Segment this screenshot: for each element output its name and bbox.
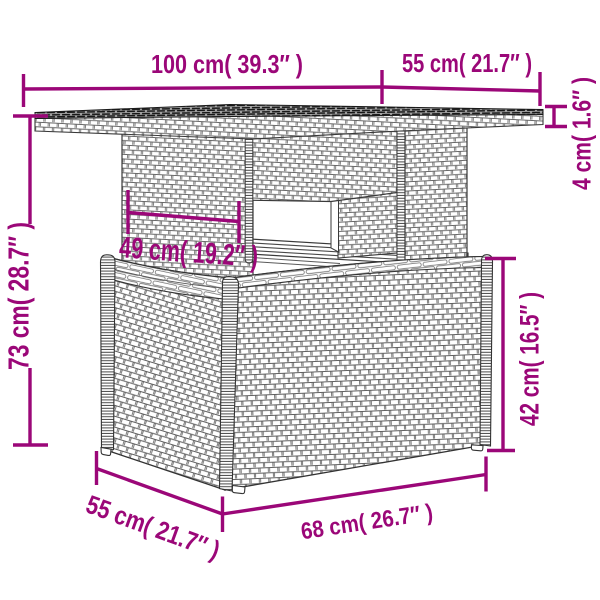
- svg-text:73 cm( 28.7″ ): 73 cm( 28.7″ ): [4, 222, 36, 370]
- svg-text:4 cm( 1.6″ ): 4 cm( 1.6″ ): [567, 77, 597, 190]
- svg-text:100 cm( 39.3″ ): 100 cm( 39.3″ ): [151, 49, 303, 79]
- svg-text:42 cm( 16.5″ ): 42 cm( 16.5″ ): [515, 292, 545, 426]
- svg-text:55 cm( 21.7″ ): 55 cm( 21.7″ ): [402, 48, 532, 78]
